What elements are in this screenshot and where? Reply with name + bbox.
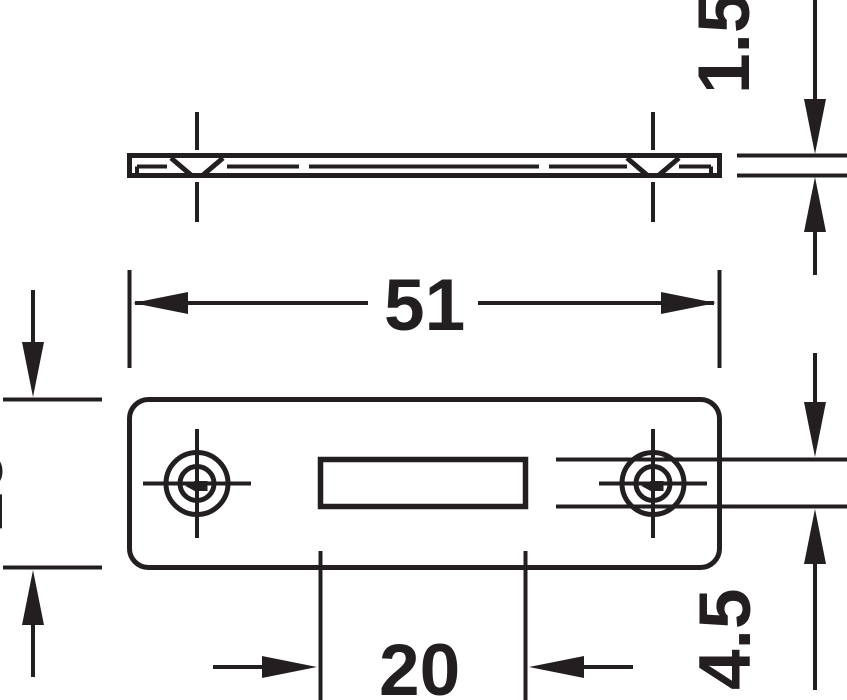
center-mark-dot xyxy=(199,481,208,491)
dim-thickness: 1.5 xyxy=(684,0,847,275)
technical-drawing: 1.5 51 xyxy=(0,0,847,700)
countersink-edge xyxy=(171,158,191,175)
arrowhead-down xyxy=(804,99,826,154)
dim-height: 16 xyxy=(0,290,102,677)
slot xyxy=(321,460,526,507)
arrowhead-right xyxy=(262,656,317,678)
screw-hole-left xyxy=(143,429,251,538)
side-view xyxy=(130,112,720,222)
dim-slot-width: 20 xyxy=(213,551,633,700)
dim-height-label: 16 xyxy=(0,452,18,533)
countersink-edge xyxy=(627,158,647,175)
arrowhead-up xyxy=(804,177,826,232)
dim-thickness-label: 1.5 xyxy=(684,0,765,94)
countersink-edge xyxy=(659,158,679,175)
arrowhead-left xyxy=(133,292,188,314)
arrowhead-down xyxy=(804,402,826,457)
arrowhead-left xyxy=(529,656,584,678)
countersink-left xyxy=(171,158,223,175)
dim-slot-height-label: 4.5 xyxy=(685,589,766,690)
countersink-right xyxy=(627,158,679,175)
side-view-inner-line xyxy=(137,167,711,175)
countersink-edge xyxy=(203,158,223,175)
drawing-canvas: 1.5 51 xyxy=(0,0,847,700)
arrowhead-up xyxy=(804,509,826,564)
arrowhead-up xyxy=(22,570,44,625)
front-view xyxy=(130,400,847,568)
dim-length: 51 xyxy=(130,265,720,368)
dim-slot-width-label: 20 xyxy=(379,630,460,700)
center-mark-dot xyxy=(655,481,664,491)
screw-hole-right xyxy=(599,429,707,538)
dim-slot-height: 4.5 xyxy=(685,353,826,690)
arrowhead-right xyxy=(661,292,716,314)
arrowhead-down xyxy=(22,342,44,397)
dim-length-label: 51 xyxy=(384,265,465,346)
